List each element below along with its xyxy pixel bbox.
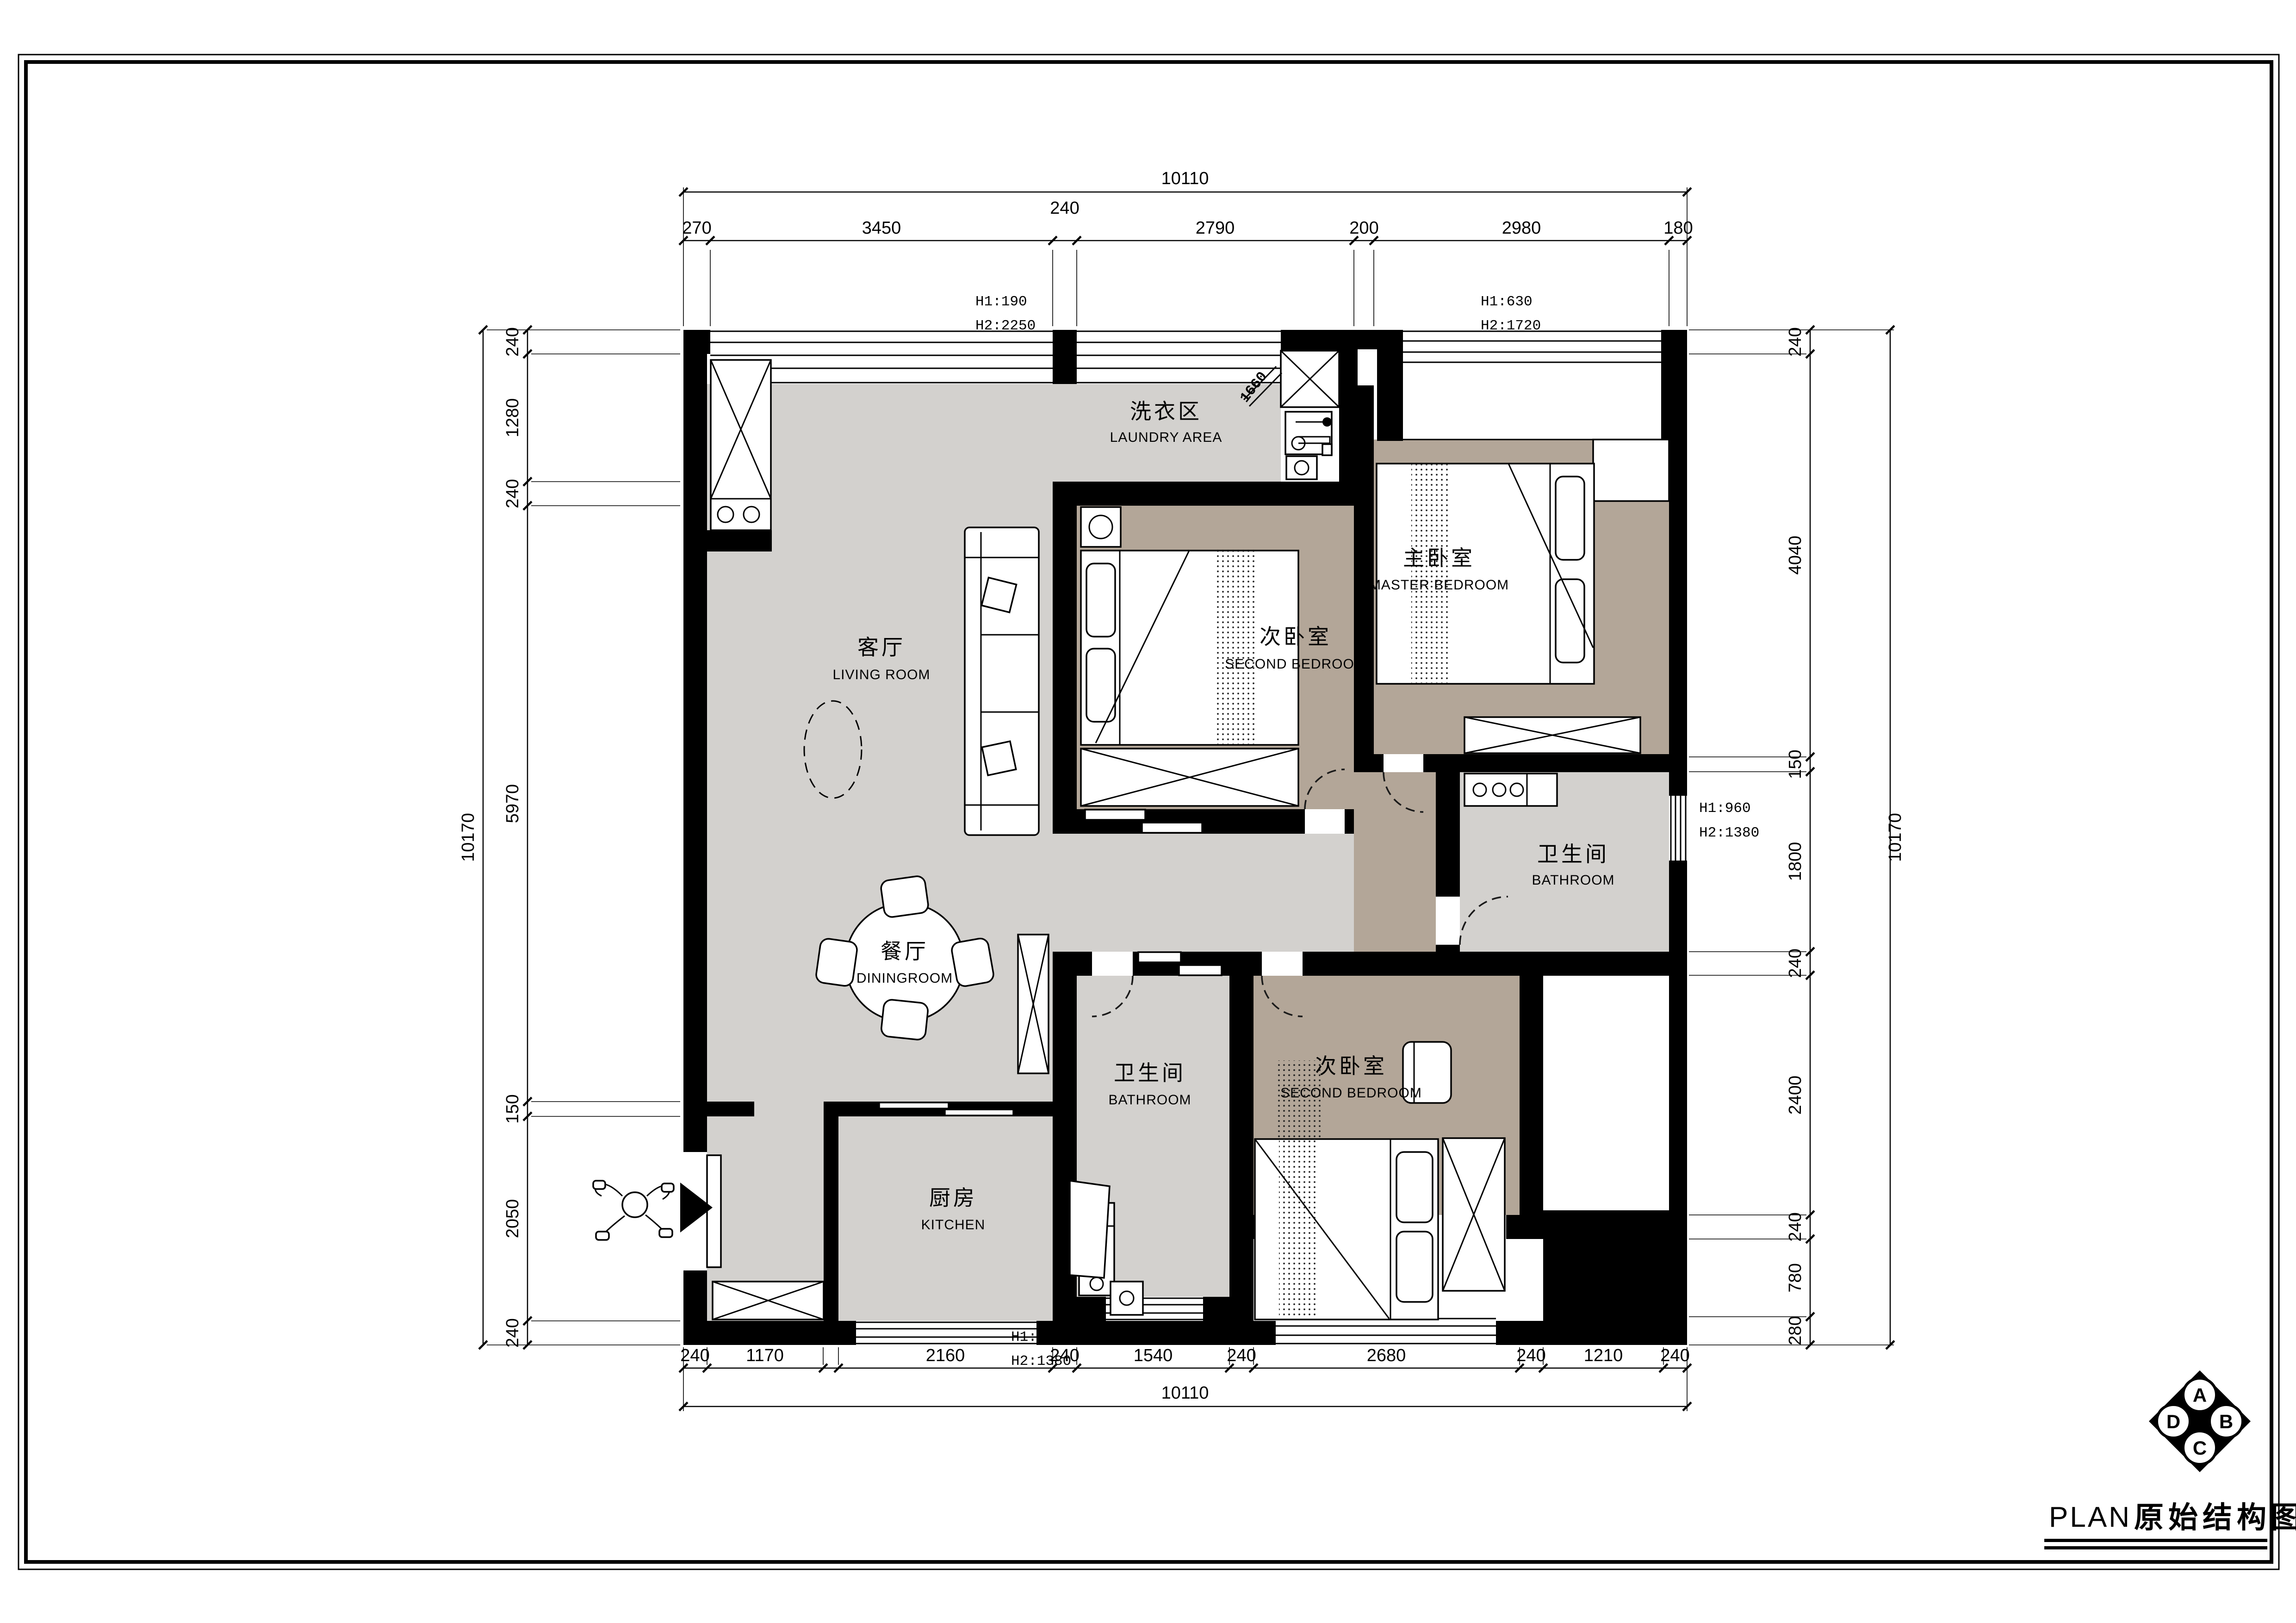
label-bath-right-en: BATHROOM [1532, 873, 1614, 888]
label-laundry-zh: 洗衣区 [1130, 399, 1202, 423]
svg-text:2790: 2790 [1196, 218, 1235, 238]
compass-b: B [2219, 1411, 2233, 1432]
svg-text:240: 240 [1786, 948, 1805, 978]
svg-text:1280: 1280 [503, 398, 522, 438]
label-kitchen-en: KITCHEN [921, 1217, 986, 1233]
window-laundry [1077, 330, 1281, 384]
svg-text:180: 180 [1663, 218, 1693, 238]
svg-text:1210: 1210 [1584, 1346, 1623, 1365]
sofa [965, 527, 1039, 835]
label-bath-right-zh: 卫生间 [1537, 842, 1609, 866]
closet-topleft [711, 360, 771, 530]
laundry-fixtures [1281, 351, 1339, 479]
anno-bottom-1: H1:960 [1011, 1329, 1063, 1345]
dim-bottom-total: 10110 [679, 1383, 1691, 1411]
svg-text:280: 280 [1786, 1316, 1805, 1345]
window-bed-bottom-bay [1276, 1317, 1496, 1345]
anno-topleft-2: H2:2250 [975, 318, 1036, 334]
label-bed-bottom-en: SECOND BEDROOM [1280, 1085, 1422, 1101]
svg-text:2160: 2160 [926, 1346, 965, 1365]
svg-text:240: 240 [1050, 198, 1079, 218]
nightstand [1081, 507, 1121, 547]
anno-topleft-1: H1:190 [975, 294, 1027, 310]
kitchen-door-leaf [1070, 1181, 1110, 1278]
label-dining-zh: 餐厅 [881, 939, 929, 963]
dim-right-total: 10170 [1886, 326, 1905, 1349]
svg-text:2980: 2980 [1502, 218, 1541, 238]
svg-text:2680: 2680 [1367, 1346, 1406, 1365]
dim-top-chain: 270 3450 240 2790 200 2980 180 [679, 198, 1693, 245]
dim-left-total: 10170 [459, 326, 487, 1349]
svg-text:240: 240 [503, 1318, 522, 1347]
label-living-zh: 客厅 [857, 635, 906, 659]
label-kitchen-zh: 厨房 [929, 1186, 977, 1210]
drawing-sheet: 1660 客厅 LIVING ROOM 洗衣区 LAUNDRY AREA 次卧室… [0, 0, 2296, 1623]
label-master-zh: 主卧室 [1403, 546, 1475, 570]
svg-text:240: 240 [1786, 327, 1805, 356]
svg-text:10170: 10170 [459, 813, 478, 862]
svg-text:780: 780 [1786, 1263, 1805, 1292]
cabinet-dining [1018, 935, 1049, 1073]
anno-right-2: H2:1380 [1699, 825, 1759, 841]
shoe-cabinet [713, 1282, 824, 1319]
compass-a: A [2193, 1384, 2207, 1406]
plan-label: PLAN [2049, 1501, 2131, 1533]
window-kitchen [856, 1321, 1036, 1345]
dim-top-total: 10110 [679, 169, 1691, 196]
compass-c: C [2193, 1437, 2207, 1459]
label-bed-top-zh: 次卧室 [1260, 625, 1332, 649]
anno-right-1: H1:960 [1699, 800, 1751, 817]
svg-text:270: 270 [682, 218, 711, 238]
floor-hall [1053, 834, 1354, 952]
bath-right-fixtures [1464, 774, 1557, 806]
svg-text:10170: 10170 [1886, 813, 1905, 862]
svg-text:4040: 4040 [1786, 536, 1805, 575]
svg-text:1540: 1540 [1134, 1346, 1173, 1365]
master-niche [1593, 440, 1669, 501]
svg-text:240: 240 [503, 327, 522, 356]
svg-text:10110: 10110 [1161, 169, 1209, 188]
entry-door-leaf [707, 1155, 721, 1267]
label-bed-top-en: SECOND BEDROOM [1225, 657, 1366, 672]
anno-topright-2: H2:1720 [1481, 318, 1541, 334]
title-block: A B C D PLAN 原始结构图 [2044, 1370, 2296, 1549]
floor-drain [1286, 456, 1317, 479]
svg-text:240: 240 [1516, 1346, 1545, 1365]
label-bath-mid-zh: 卫生间 [1114, 1061, 1186, 1085]
window-bath-right [1669, 796, 1687, 861]
svg-text:240: 240 [1786, 1212, 1805, 1241]
svg-text:240: 240 [680, 1346, 709, 1365]
svg-text:150: 150 [503, 1094, 522, 1123]
svg-text:2050: 2050 [503, 1199, 522, 1239]
svg-text:240: 240 [503, 479, 522, 508]
dim-right-chain: 240 4040 150 1800 240 2400 240 780 280 [1786, 326, 1814, 1349]
label-bed-bottom-zh: 次卧室 [1315, 1054, 1387, 1078]
label-master-en: MASTER BEDROOM [1369, 577, 1509, 593]
svg-text:1800: 1800 [1786, 842, 1805, 881]
svg-text:10110: 10110 [1161, 1383, 1209, 1403]
label-living-en: LIVING ROOM [832, 667, 930, 682]
svg-text:5970: 5970 [503, 784, 522, 824]
svg-text:2400: 2400 [1786, 1076, 1805, 1115]
svg-text:150: 150 [1786, 750, 1805, 779]
svg-text:1170: 1170 [746, 1346, 784, 1365]
svg-text:3450: 3450 [862, 218, 901, 238]
dim-left-chain: 240 1280 240 5970 150 2050 240 [503, 326, 532, 1349]
svg-text:240: 240 [1660, 1346, 1689, 1365]
compass-d: D [2166, 1411, 2180, 1432]
compass: A B C D [2149, 1370, 2251, 1472]
svg-text:200: 200 [1349, 218, 1378, 238]
label-laundry-en: LAUNDRY AREA [1110, 430, 1222, 445]
label-bath-mid-en: BATHROOM [1108, 1092, 1191, 1108]
svg-text:240: 240 [1050, 1346, 1079, 1365]
svg-text:150: 150 [816, 1329, 845, 1348]
plan-title: 原始结构图 [2134, 1501, 2296, 1534]
anno-topright-1: H1:630 [1481, 294, 1533, 310]
svg-text:240: 240 [1227, 1346, 1256, 1365]
label-dining-en: DININGROOM [856, 971, 953, 986]
